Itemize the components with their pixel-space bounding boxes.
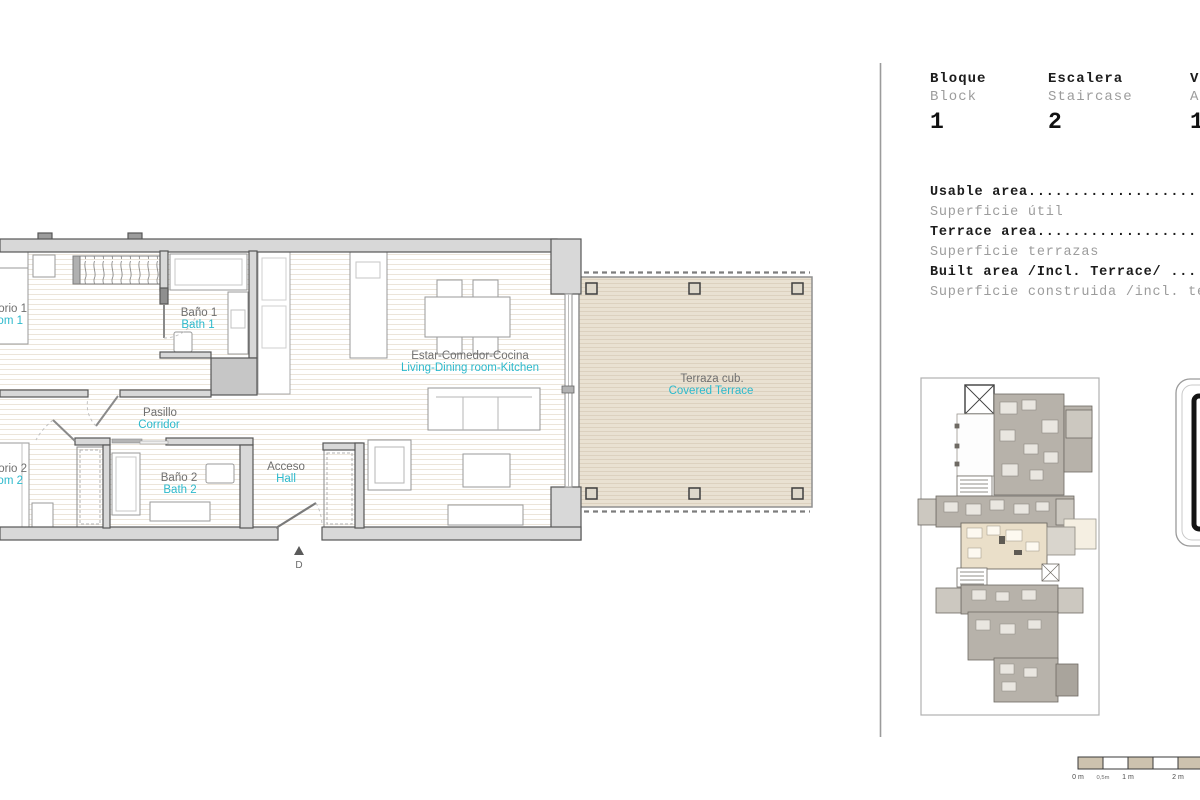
wall-bed2-bath2 xyxy=(103,445,110,528)
label-hall-es: Acceso xyxy=(267,461,305,473)
sliding-door-bath2-track xyxy=(140,441,168,444)
edge-detail xyxy=(1176,379,1200,546)
bath1-toilet xyxy=(174,332,192,352)
header-staircase-subtitle: Staircase xyxy=(1048,88,1133,106)
sofa xyxy=(428,388,540,430)
header-apartment: Vivienda Apartment 1 xyxy=(1190,70,1200,135)
wardrobe-1 xyxy=(73,256,163,284)
usable-area-row: Usable area.............................… xyxy=(930,183,1200,203)
dining-chair xyxy=(473,280,498,297)
dining-table xyxy=(425,297,510,337)
terrace-area-es: Superficie terrazas xyxy=(930,243,1200,263)
key-plan xyxy=(918,378,1099,715)
scale-label-2: 2 m xyxy=(1172,774,1184,781)
label-bath2-en: Bath 2 xyxy=(163,484,196,496)
header-staircase-title: Escalera xyxy=(1048,70,1133,88)
header-block-value: 1 xyxy=(930,109,986,135)
key-plan-stairs xyxy=(957,476,992,496)
label-hall-en: Hall xyxy=(276,473,296,485)
scale-label-0: 0 m xyxy=(1072,774,1084,781)
sliding-door-bath2 xyxy=(112,439,142,443)
plan-drawing: D Dormitorio 1 Bedroom 1 Baño 1 Bath 1 P… xyxy=(0,0,1200,800)
entrance-marker-label: D xyxy=(295,560,302,571)
scale-bar: 0 m 0,5m 1 m 2 m xyxy=(1072,757,1200,781)
entrance-marker: D xyxy=(294,546,304,571)
scale-label-1: 1 m xyxy=(1122,774,1134,781)
bath2-tub xyxy=(150,502,210,521)
label-bedroom1-es: Dormitorio 1 xyxy=(0,303,27,315)
bath2-toilet xyxy=(206,464,234,483)
wall-hall-living xyxy=(355,443,364,528)
nightstand-1 xyxy=(33,255,55,277)
scale-label-05: 0,5m xyxy=(1097,775,1110,781)
header-staircase: Escalera Staircase 2 xyxy=(1048,70,1133,135)
wall-bath1-living xyxy=(249,251,257,358)
wall-corridor-north-b xyxy=(120,390,211,397)
label-bedroom1-en: Bedroom 1 xyxy=(0,315,23,327)
sideboard xyxy=(448,505,523,525)
entrance-arrow-icon xyxy=(294,546,304,555)
label-terrace-es: Terraza cub. xyxy=(680,373,743,385)
wardrobe-1-side xyxy=(73,256,80,284)
label-bedroom2-en: Bedroom 2 xyxy=(0,475,23,487)
header-apartment-title: Vivienda xyxy=(1190,70,1200,88)
label-living-en: Living-Dining room-Kitchen xyxy=(401,362,539,374)
wardrobe-2 xyxy=(77,447,103,527)
usable-area-es: Superficie útil xyxy=(930,203,1200,223)
wall-corridor-north-a xyxy=(0,390,88,397)
area-summary: Usable area.............................… xyxy=(930,183,1200,303)
wall-corridor-south-a xyxy=(75,438,110,445)
kitchen-cabinets xyxy=(258,252,290,394)
label-living-es: Estar-Comedor-Cocina xyxy=(411,350,529,362)
bed-1 xyxy=(0,252,28,344)
wall-corridor-south-b xyxy=(166,438,253,445)
header-staircase-value: 2 xyxy=(1048,109,1133,135)
built-area-row: Built area /Incl. Terrace/ .............… xyxy=(930,263,1200,283)
outer-wall-bottom-left xyxy=(0,527,278,540)
door-jamb xyxy=(160,288,168,304)
header-apartment-subtitle: Apartment xyxy=(1190,88,1200,106)
header-block-subtitle: Block xyxy=(930,88,986,106)
outer-wall-top xyxy=(0,239,557,252)
header-block-title: Bloque xyxy=(930,70,986,88)
built-area-es: Superficie construida /incl. terrazas/ xyxy=(930,283,1200,303)
outer-wall-corner-ne xyxy=(551,239,581,294)
header-block: Bloque Block 1 xyxy=(930,70,986,135)
label-bath2-es: Baño 2 xyxy=(161,472,197,484)
label-bedroom2-es: Dormitorio 2 xyxy=(0,463,27,475)
outer-wall-bottom-right xyxy=(322,527,581,540)
label-corridor-en: Corridor xyxy=(138,419,180,431)
key-plan-open-area xyxy=(957,414,995,476)
label-bath1-en: Bath 1 xyxy=(181,319,214,331)
nightstand-2 xyxy=(32,503,53,527)
glass-wall-mullion xyxy=(562,386,574,393)
duct-block xyxy=(211,358,257,395)
label-terrace-en: Covered Terrace xyxy=(669,385,754,397)
header-apartment-value: 1 xyxy=(1190,109,1200,135)
wall-bath2-hall xyxy=(240,445,253,528)
terrace-area-row: Terrace area............................… xyxy=(930,223,1200,243)
floorplan-sheet: D Dormitorio 1 Bedroom 1 Baño 1 Bath 1 P… xyxy=(0,0,1200,800)
label-corridor-es: Pasillo xyxy=(143,407,177,419)
wall-bath1-south xyxy=(160,352,211,358)
coffee-table xyxy=(463,454,510,487)
hall-closet xyxy=(324,450,355,527)
label-bath1-es: Baño 1 xyxy=(181,307,217,319)
dining-chair xyxy=(437,280,462,297)
wall-bed1-bath1 xyxy=(160,251,168,291)
